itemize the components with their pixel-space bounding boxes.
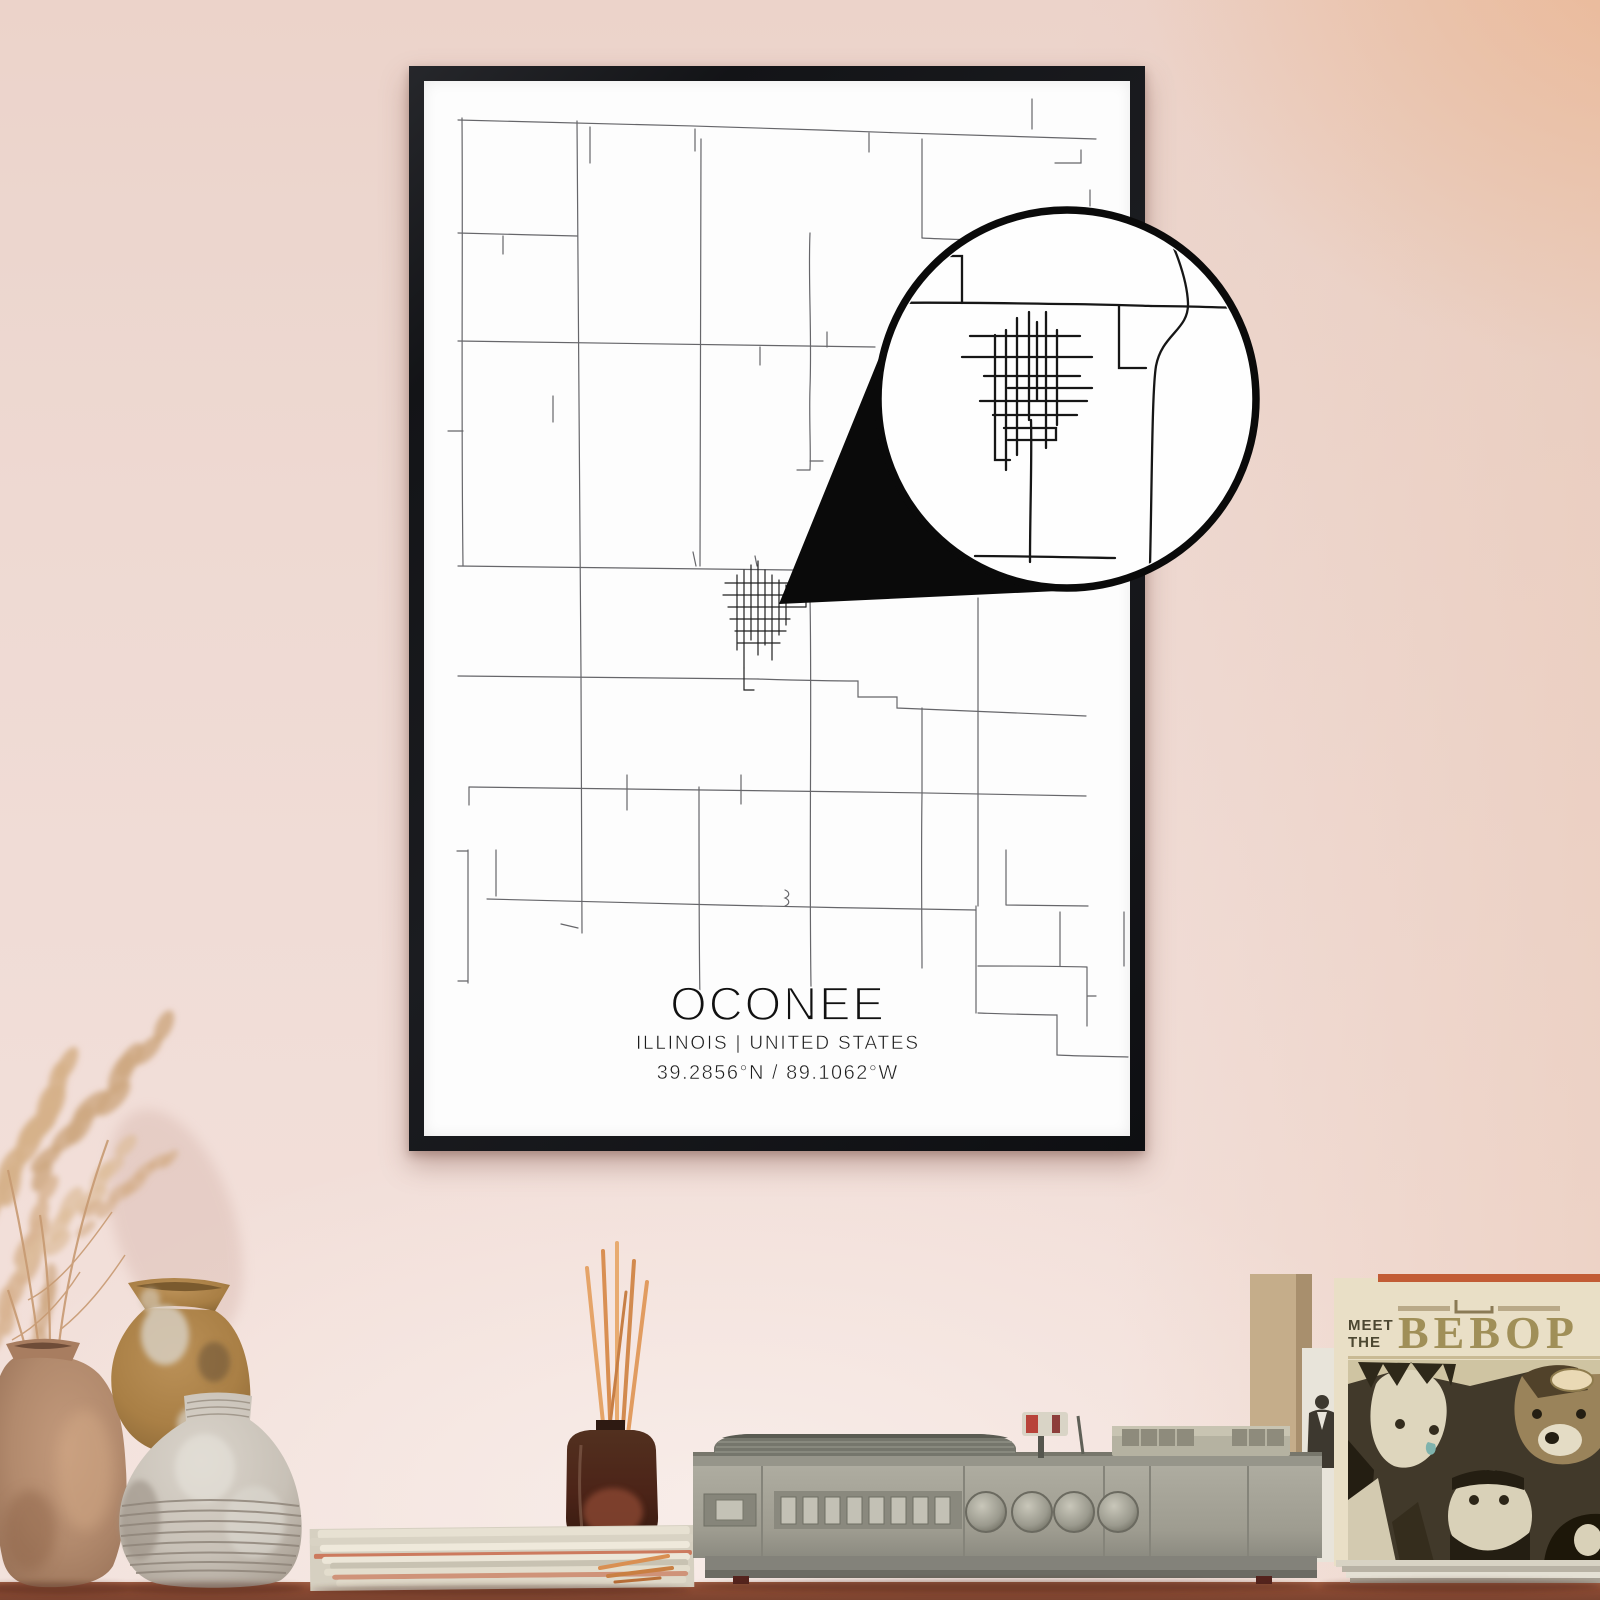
- svg-text:BEBOP: BEBOP: [1398, 1307, 1579, 1358]
- svg-text:MEET: MEET: [1348, 1317, 1394, 1334]
- svg-text:THE: THE: [1348, 1334, 1381, 1351]
